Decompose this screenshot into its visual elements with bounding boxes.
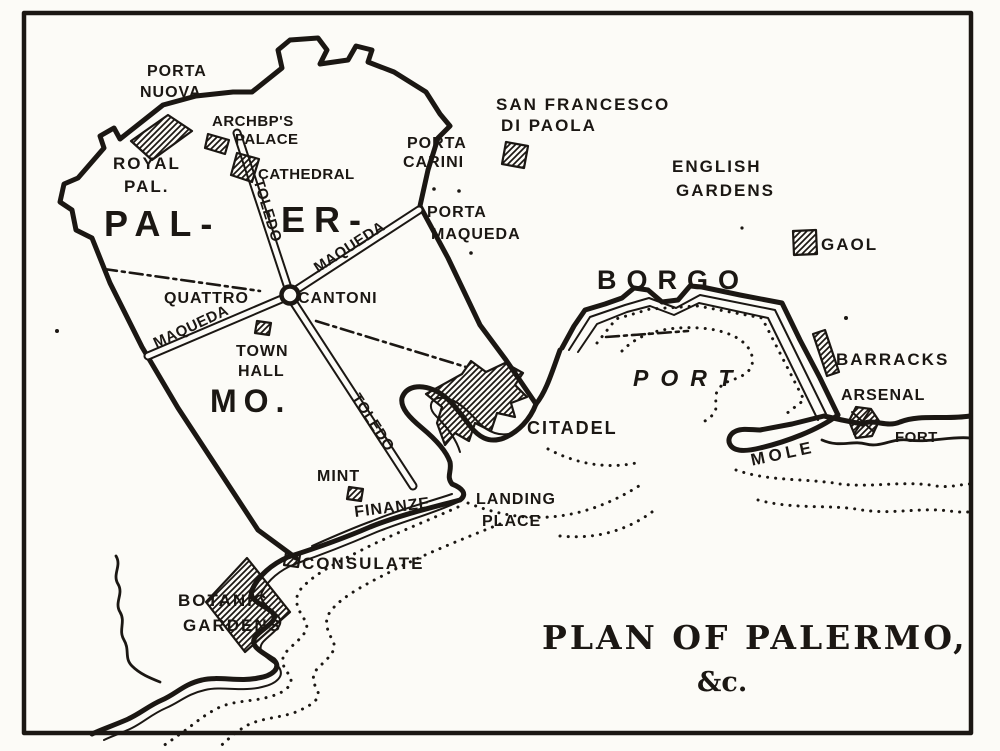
label-barracks: BARRACKS [836,350,949,369]
labels: PORTA NUOVA ARCHBP'S PALACE ROYAL PAL. C… [104,63,968,698]
label-toledo-upper: TOLEDO [250,177,285,244]
label-landing-place-line1: LANDING [476,491,556,508]
label-porta-carini-line1: PORTA [407,135,467,152]
label-porta-maqueda-line1: PORTA [427,204,487,221]
label-quattro: QUATTRO [164,290,249,307]
label-citadel: CITADEL [527,418,618,438]
label-consulate: CONSULATE [302,554,425,573]
label-landing-place-line2: PLACE [482,513,541,530]
map-title-etc: &c. [697,667,747,698]
label-english-gardens-line1: ENGLISH [672,157,762,176]
label-town-hall-line1: TOWN [236,343,289,360]
label-mint: MINT [317,468,360,485]
label-toledo-lower: TOLEDO [348,391,398,455]
label-borgo: BORGO [597,265,749,295]
label-royal-palace-line2: PAL. [124,177,169,196]
san-francesco-building [502,142,528,168]
label-english-gardens-line2: GARDENS [676,181,775,200]
label-san-francesco-line1: SAN FRANCESCO [496,95,670,114]
plan-of-palermo-map: PORTA NUOVA ARCHBP'S PALACE ROYAL PAL. C… [0,0,1000,751]
label-archbishops-palace-line2: PALACE [235,131,299,148]
label-fort: FORT [895,429,938,446]
map-title: PLAN OF PALERMO, [542,618,968,657]
label-gaol: GAOL [821,235,878,254]
label-town-hall-line2: HALL [238,363,285,380]
label-porta-maqueda-line2: MAQUEDA [431,226,521,243]
label-palermo-pal: PAL- [104,203,221,244]
label-porta-nuova-line1: PORTA [147,63,207,80]
label-san-francesco-line2: DI PAOLA [501,116,597,135]
mint-building [347,487,363,501]
consulate-building [284,553,300,567]
label-porta-nuova-line2: NUOVA [140,84,202,101]
label-botanic-gardens-line2: GARDENS [183,616,282,635]
label-royal-palace-line1: ROYAL [113,154,181,173]
map-page: PORTA NUOVA ARCHBP'S PALACE ROYAL PAL. C… [0,0,1000,751]
gaol-building [793,230,817,255]
town-hall-building [255,321,271,335]
quattro-cantoni-circle [282,287,299,304]
archbishops-palace-building [205,134,229,154]
label-port: PORT [633,365,744,391]
label-archbishops-palace-line1: ARCHBP'S [212,113,294,130]
label-arsenal: ARSENAL [841,387,925,404]
arsenal-fort [849,407,879,438]
label-cathedral: CATHEDRAL [258,166,355,183]
label-palermo-mo: MO. [210,383,291,419]
label-porta-carini-line2: CARINI [403,154,464,171]
label-cantoni: CANTONI [298,290,378,307]
label-botanic-gardens-line1: BOTANIC [178,591,268,610]
